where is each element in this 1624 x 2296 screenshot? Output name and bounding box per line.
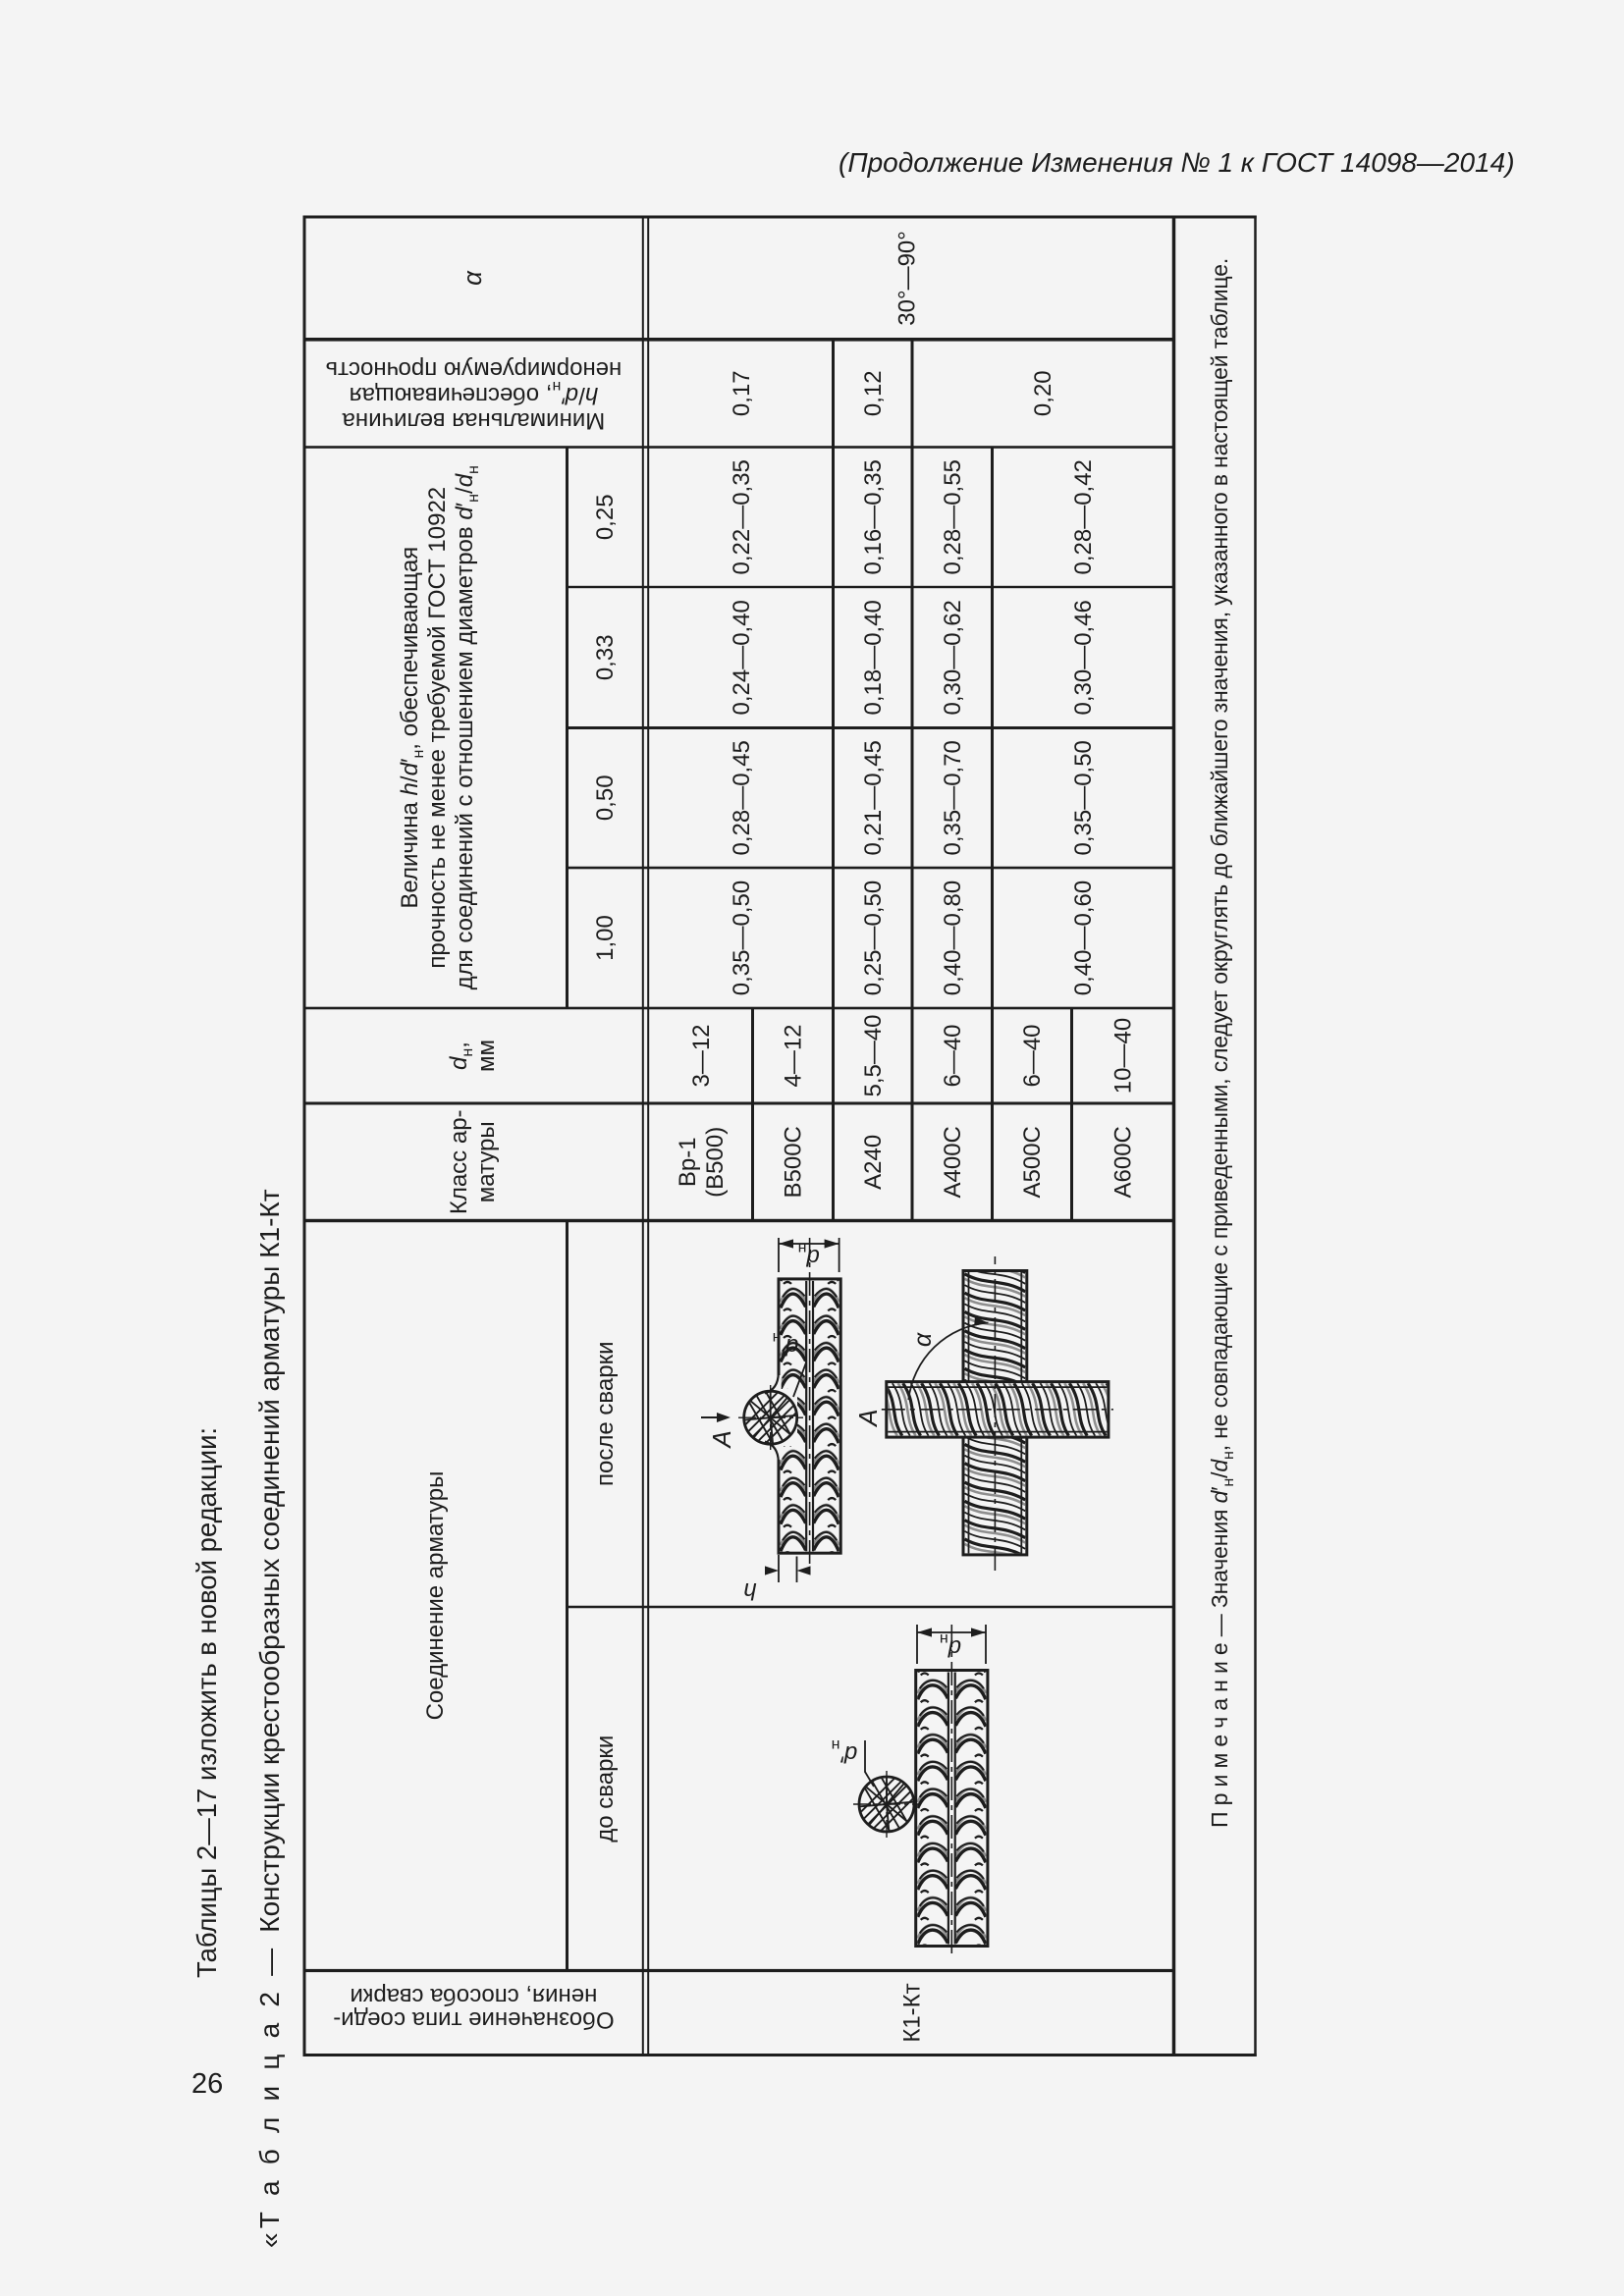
- svg-text:А: А: [707, 1430, 736, 1449]
- svg-text:dн​: dн​: [940, 1630, 961, 1661]
- svg-text:0,16—0,35: 0,16—0,35: [860, 459, 887, 574]
- svg-text:для соединений с отношением ди: для соединений с отношением диаметров d′…: [452, 465, 482, 989]
- svg-text:матуры: матуры: [473, 1121, 500, 1202]
- svg-text:0,28—0,45: 0,28—0,45: [729, 740, 755, 855]
- svg-text:3—12: 3—12: [688, 1024, 715, 1087]
- svg-text:А400С: А400С: [940, 1126, 966, 1198]
- svg-text:Обозначение типа соеди-: Обозначение типа соеди-: [333, 2006, 614, 2033]
- svg-text:0,24—0,40: 0,24—0,40: [729, 600, 755, 715]
- svg-text:(В500): (В500): [702, 1127, 729, 1198]
- svg-text:Вр-1: Вр-1: [675, 1137, 701, 1187]
- svg-text:0,40—0,80: 0,40—0,80: [940, 881, 966, 995]
- svg-text:0,30—0,46: 0,30—0,46: [1070, 600, 1097, 715]
- svg-text:«Т а б л и ц а 2 — Конструкци: «Т а б л и ц а 2 — Конструкции крестообр…: [254, 1189, 285, 2248]
- svg-text:нения, способа сварки: нения, способа сварки: [350, 1983, 597, 2009]
- svg-text:0,25—0,50: 0,25—0,50: [860, 881, 887, 995]
- svg-text:0,33: 0,33: [592, 634, 619, 680]
- svg-text:0,35—0,70: 0,35—0,70: [940, 740, 966, 855]
- svg-text:0,12: 0,12: [860, 370, 887, 416]
- svg-text:α: α: [458, 270, 487, 286]
- svg-text:Соединение арматуры: Соединение арматуры: [422, 1471, 449, 1721]
- svg-text:А500С: А500С: [1019, 1126, 1046, 1198]
- svg-text:мм: мм: [473, 1040, 500, 1072]
- svg-text:А240: А240: [860, 1135, 887, 1190]
- svg-text:0,35—0,50: 0,35—0,50: [1070, 740, 1097, 855]
- svg-text:после сварки: после сварки: [592, 1341, 619, 1485]
- svg-text:Величина h/d′н​, обеспечивающа: Величина h/d′н​, обеспечивающая: [397, 547, 427, 909]
- svg-text:0,20: 0,20: [1030, 370, 1056, 416]
- svg-text:0,28—0,42: 0,28—0,42: [1070, 459, 1097, 574]
- svg-text:0,28—0,55: 0,28—0,55: [940, 459, 966, 574]
- svg-text:30°—90°: 30°—90°: [894, 231, 921, 326]
- svg-text:10—40: 10—40: [1110, 1018, 1137, 1094]
- svg-text:А: А: [853, 1410, 883, 1428]
- svg-text:В500С: В500С: [781, 1126, 807, 1198]
- svg-text:0,21—0,45: 0,21—0,45: [860, 740, 887, 855]
- svg-text:Минимальная величина: Минимальная величина: [342, 407, 605, 434]
- svg-text:0,50: 0,50: [592, 774, 619, 821]
- svg-text:до сварки: до сварки: [592, 1735, 619, 1842]
- svg-text:0,40—0,60: 0,40—0,60: [1070, 881, 1097, 995]
- svg-text:Таблицы 2—17 изложить в новой: Таблицы 2—17 изложить в новой редакции:: [191, 1427, 222, 1978]
- svg-text:0,18—0,40: 0,18—0,40: [860, 600, 887, 715]
- svg-text:4—12: 4—12: [781, 1024, 807, 1087]
- svg-text:0,17: 0,17: [729, 370, 755, 416]
- svg-text:h: h: [743, 1577, 756, 1604]
- svg-text:6—40: 6—40: [1019, 1024, 1046, 1087]
- svg-text:0,35—0,50: 0,35—0,50: [729, 881, 755, 995]
- svg-text:А600С: А600С: [1110, 1126, 1137, 1198]
- svg-text:прочность не менее требуемой Г: прочность не менее требуемой ГОСТ 10922: [424, 487, 451, 969]
- svg-text:dн​,: dн​,: [446, 1041, 476, 1070]
- svg-text:d′н​: d′н​: [832, 1736, 858, 1767]
- svg-text:5,5—40: 5,5—40: [860, 1014, 887, 1096]
- svg-text:Класс ар-: Класс ар-: [446, 1109, 472, 1214]
- svg-text:0,22—0,35: 0,22—0,35: [729, 459, 755, 574]
- svg-text:6—40: 6—40: [940, 1024, 966, 1087]
- svg-text:α: α: [909, 1332, 937, 1347]
- svg-text:П р и м е ч а н и е — Значения: П р и м е ч а н и е — Значения d′н​/dн​,…: [1207, 258, 1237, 1828]
- svg-text:ненормируемую прочность: ненормируемую прочность: [325, 356, 622, 383]
- svg-text:dн​: dн​: [798, 1240, 820, 1270]
- svg-text:К1-Кт: К1-Кт: [899, 1983, 926, 2042]
- svg-text:0,30—0,62: 0,30—0,62: [940, 600, 966, 715]
- svg-text:1,00: 1,00: [592, 915, 619, 961]
- svg-text:0,25: 0,25: [592, 494, 619, 540]
- svg-text:d′н​: d′н​: [773, 1329, 799, 1360]
